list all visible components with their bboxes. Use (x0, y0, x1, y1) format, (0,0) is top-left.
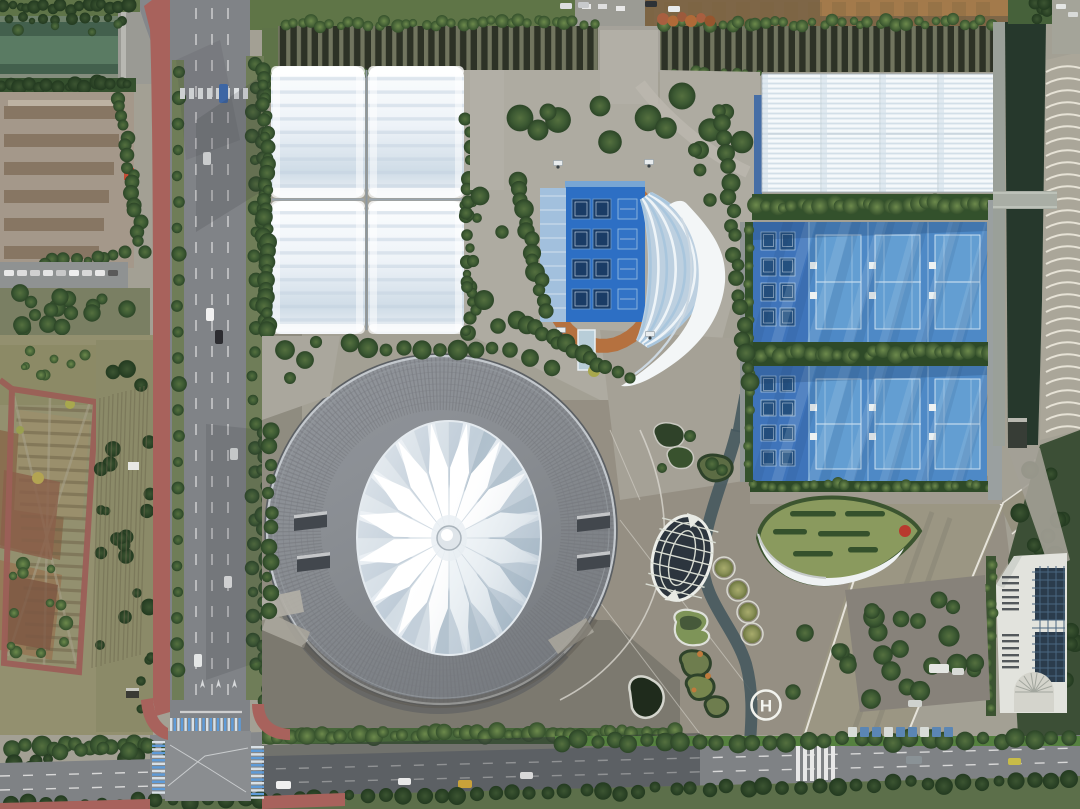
svg-text:H: H (760, 697, 772, 716)
